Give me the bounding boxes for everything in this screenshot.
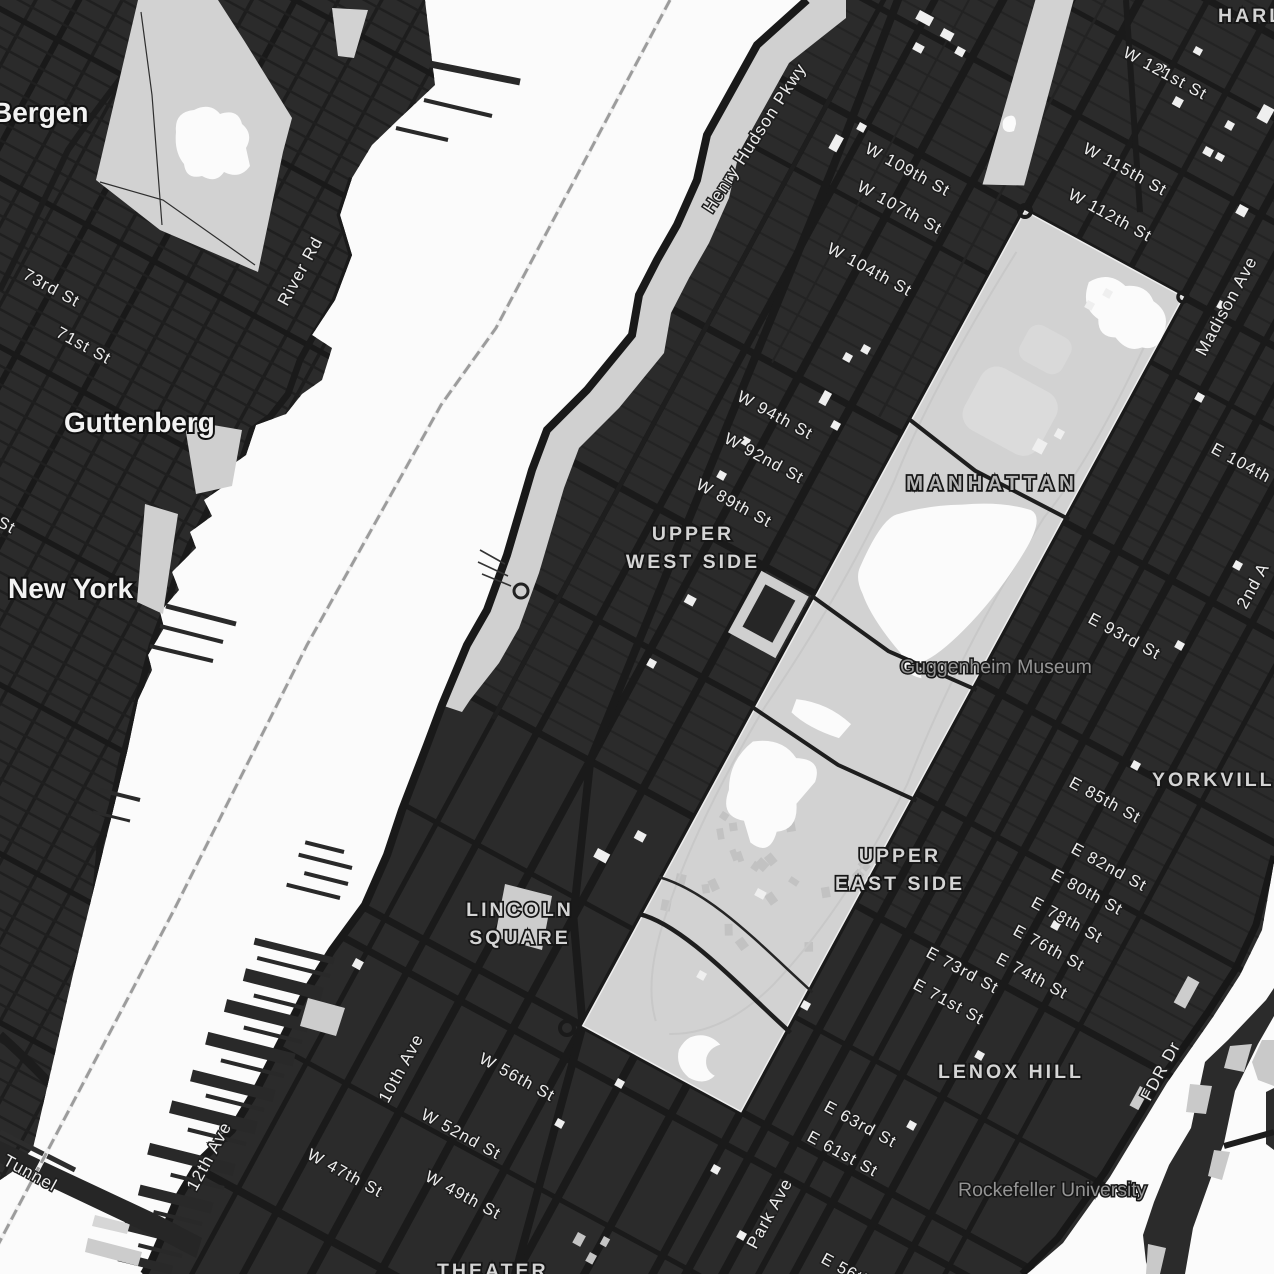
svg-text:Rockefeller University: Rockefeller University <box>958 1179 1147 1201</box>
svg-text:EAST SIDE: EAST SIDE <box>835 873 965 895</box>
svg-text:THEATER: THEATER <box>437 1260 549 1274</box>
svg-text:SQUARE: SQUARE <box>469 927 570 949</box>
svg-text:New York: New York <box>8 573 133 604</box>
svg-text:MANHATTAN: MANHATTAN <box>906 472 1079 495</box>
svg-text:UPPER: UPPER <box>859 845 941 867</box>
svg-text:Guggenheim Museum: Guggenheim Museum <box>900 656 1092 678</box>
svg-text:YORKVILLE: YORKVILLE <box>1152 769 1274 791</box>
svg-text:Bergen: Bergen <box>0 97 88 128</box>
svg-text:Guttenberg: Guttenberg <box>64 407 215 438</box>
svg-text:WEST SIDE: WEST SIDE <box>626 551 760 573</box>
svg-text:LINCOLN: LINCOLN <box>466 899 574 921</box>
svg-text:LENOX HILL: LENOX HILL <box>938 1061 1084 1083</box>
svg-text:HARL: HARL <box>1218 5 1274 27</box>
svg-text:UPPER: UPPER <box>652 523 734 545</box>
